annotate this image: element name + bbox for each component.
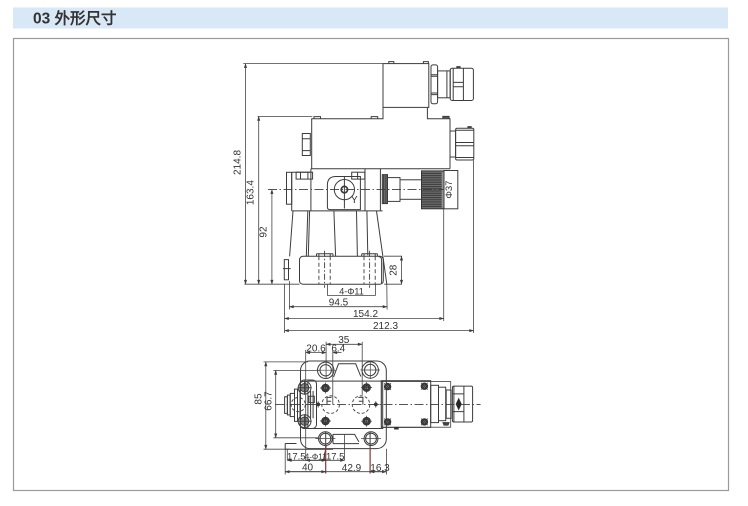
svg-text:214.8: 214.8 <box>232 150 243 175</box>
svg-text:212.3: 212.3 <box>373 321 398 332</box>
svg-text:Y: Y <box>351 195 358 206</box>
svg-text:42.9: 42.9 <box>342 463 362 474</box>
svg-text:17.5: 17.5 <box>326 451 345 462</box>
svg-text:16.3: 16.3 <box>370 463 390 474</box>
svg-text:163.4: 163.4 <box>245 180 256 205</box>
svg-text:28: 28 <box>389 264 400 276</box>
svg-text:03 外形尺寸: 03 外形尺寸 <box>33 9 117 28</box>
svg-text:154.2: 154.2 <box>353 309 378 320</box>
svg-text:40: 40 <box>302 463 314 474</box>
svg-text:4-Φ11: 4-Φ11 <box>305 452 327 461</box>
svg-text:92: 92 <box>258 226 269 238</box>
svg-text:4-Φ11: 4-Φ11 <box>339 286 364 296</box>
svg-text:94.5: 94.5 <box>329 298 349 309</box>
svg-text:66.7: 66.7 <box>263 391 274 411</box>
svg-text:20.6: 20.6 <box>306 343 326 354</box>
svg-text:6.4: 6.4 <box>331 343 345 354</box>
svg-text:17.5: 17.5 <box>287 451 306 462</box>
svg-text:Φ37: Φ37 <box>444 181 455 199</box>
